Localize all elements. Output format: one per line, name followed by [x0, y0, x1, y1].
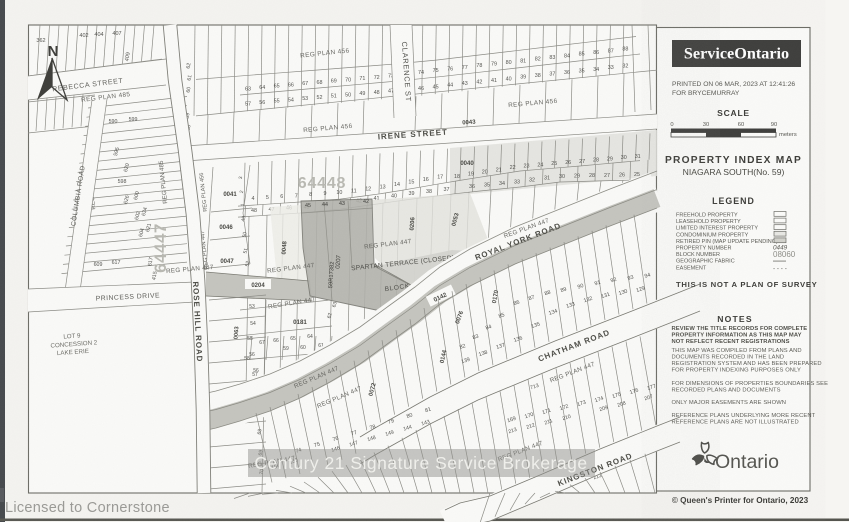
- svg-text:© Queen's Printer for Ontario,: © Queen's Printer for Ontario, 2023: [672, 496, 809, 505]
